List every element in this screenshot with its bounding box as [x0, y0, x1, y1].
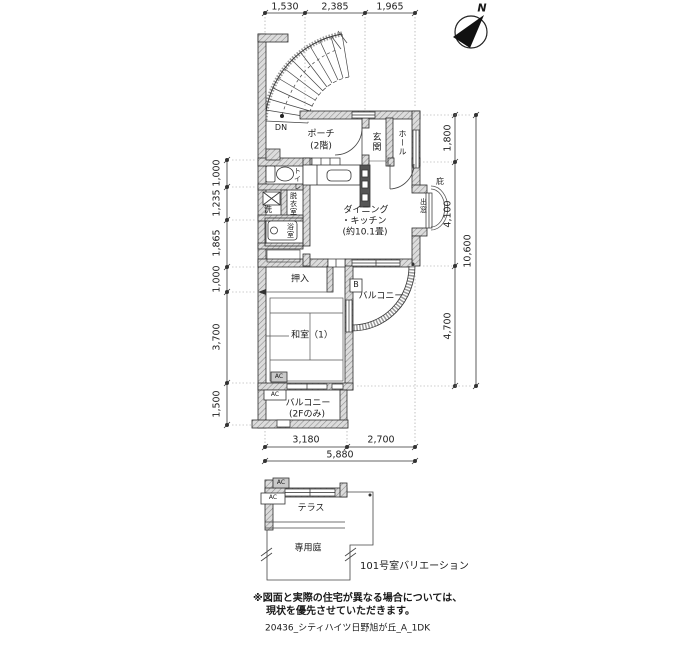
- room-label-toilet: トイレ: [294, 167, 301, 191]
- dim-left-5: 3,700: [212, 323, 222, 350]
- room-label-dk-line3: (約10.1畳): [342, 229, 387, 238]
- washing-machine-icon: [263, 192, 280, 205]
- room-label-washitsu: 和室（1）: [291, 332, 333, 341]
- room-label-eaves: 庇: [436, 178, 444, 186]
- dim-bottom-total: 5,880: [323, 450, 356, 460]
- room-label-garden: 専用庭: [294, 545, 321, 554]
- dim-left-1: 1,000: [212, 159, 222, 186]
- room-label-balcony2f-line2: (2Fのみ): [289, 411, 325, 420]
- dim-top-3: 1,965: [376, 2, 403, 12]
- drawing-title: 20436_シティハイツ日野旭が丘_A_1DK: [265, 625, 430, 634]
- room-label-porch: ポーチ: [307, 131, 334, 140]
- floor-plan-page: 1,530 2,385 1,965 N DN ポーチ (2階) 玄関 ホール ト…: [0, 0, 700, 650]
- dim-left-6: 1,500: [212, 390, 222, 417]
- room-label-hall: ホール: [398, 130, 406, 157]
- room-label-balcony: バルコニー: [359, 293, 404, 302]
- dim-left-2: 1,235: [212, 189, 222, 216]
- room-label-bath: 浴室: [287, 223, 294, 239]
- room-label-wash: 洗: [264, 206, 272, 214]
- room-label-balcony2f-line1: バルコニー: [286, 400, 331, 409]
- disclaimer-line2: 現状を優先させていただきます。: [266, 607, 415, 617]
- toilet-fixture: [266, 166, 294, 182]
- room-label-terrace: テラス: [298, 505, 325, 514]
- dim-right-2: 4,100: [443, 200, 453, 227]
- room-label-dk-line1: ダイニング: [343, 207, 388, 216]
- meter-box: [266, 149, 280, 160]
- floor-plan-drawing: [0, 0, 700, 650]
- room-label-bay-window: 出窓: [420, 198, 427, 214]
- balcony-b-mark: B: [353, 281, 359, 289]
- dim-top-2: 2,385: [321, 2, 348, 12]
- dim-bottom-2: 2,700: [367, 435, 394, 445]
- room-label-entrance: 玄関: [371, 132, 380, 152]
- dim-left-3: 1,865: [212, 229, 222, 256]
- kitchen-counter: [303, 165, 370, 207]
- variation-label: 101号室バリエーション: [360, 562, 469, 572]
- bathtub-fixture: [265, 218, 303, 262]
- disclaimer-line1: ※図面と実際の住宅が異なる場合については、: [253, 594, 462, 604]
- room-label-dk-line2: ・キッチン: [341, 218, 386, 227]
- north-label: N: [477, 3, 486, 14]
- room-label-closet: 押入: [291, 276, 309, 285]
- room-label-dressing: 脱衣室: [290, 192, 297, 216]
- dim-top-1: 1,530: [271, 2, 298, 12]
- ac-box-2: AC: [271, 392, 279, 398]
- dim-left-4: 1,000: [212, 265, 222, 292]
- dim-right-total: 10,600: [463, 234, 473, 267]
- ac-box-1: AC: [275, 374, 283, 380]
- north-arrow-icon: [453, 15, 487, 48]
- dim-right-1: 1,800: [443, 124, 453, 151]
- stairs-down-label: DN: [275, 124, 287, 132]
- ac-box-4: AC: [269, 495, 277, 501]
- ac-box-3: AC: [277, 480, 285, 486]
- curved-staircase: [265, 31, 349, 123]
- dim-bottom-1: 3,180: [292, 435, 319, 445]
- dim-right-3: 4,700: [443, 312, 453, 339]
- room-label-porch-floor: (2階): [310, 143, 332, 152]
